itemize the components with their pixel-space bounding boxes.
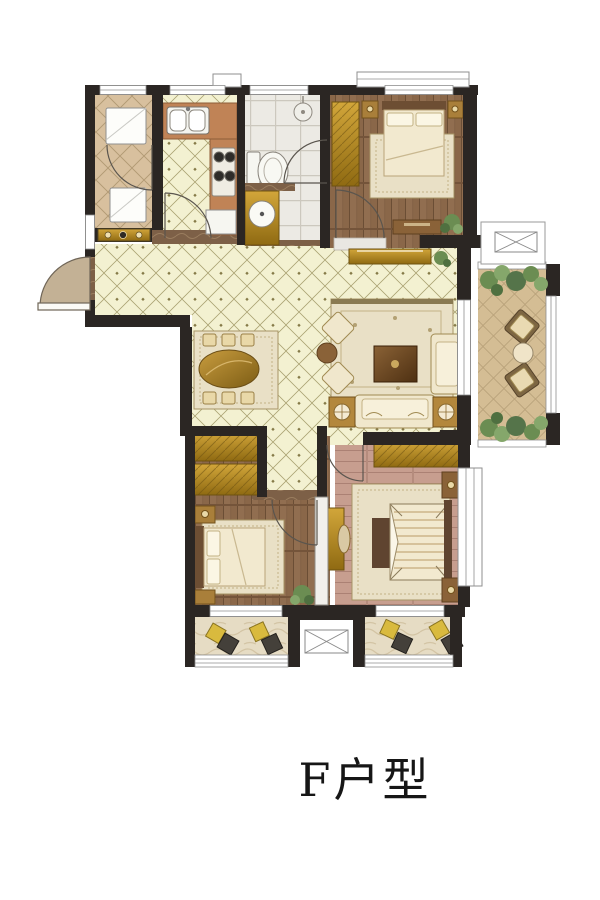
bay-window-kitchen <box>213 74 241 87</box>
nightstand <box>195 590 215 604</box>
window-balcony-left <box>195 655 288 667</box>
bed-headboard <box>444 500 452 584</box>
wall-duct-top <box>288 610 365 620</box>
sink-basin-right <box>189 110 205 131</box>
entry-door-leaf <box>38 303 90 310</box>
entry-console <box>98 229 150 241</box>
wall-balcony-right-bottom-bracket <box>546 413 560 445</box>
wall-balcony-right-top-bracket <box>546 264 560 296</box>
wall-master-north <box>363 432 467 445</box>
dining-chair <box>203 334 216 346</box>
floor-plan-canvas: F户型 <box>0 0 600 900</box>
dining-chair <box>222 334 235 346</box>
dresser-mirror <box>338 525 350 553</box>
bay-window-master <box>458 468 482 586</box>
pillow <box>207 531 220 556</box>
pillow <box>387 113 413 126</box>
bed-headboard <box>195 526 204 588</box>
bath-partition <box>245 183 295 191</box>
wall-utility-kitchen <box>152 95 163 230</box>
entry-hall-floor <box>95 244 330 315</box>
rug-fringe <box>331 299 453 304</box>
wall-west-mid <box>180 327 192 436</box>
plan-title: F户型 <box>230 744 500 810</box>
duct-shaft-bottom-interior <box>300 620 353 667</box>
dresser <box>393 220 441 234</box>
dining-chair <box>203 392 216 404</box>
wall-dining-bedroom3 <box>190 426 267 436</box>
dining-chair <box>241 392 254 404</box>
window-balcony-right <box>365 655 453 667</box>
dining-chair <box>222 392 235 404</box>
pillow <box>416 113 442 126</box>
pillow <box>207 559 220 584</box>
bed-headboard <box>382 101 446 110</box>
hallway-floor <box>267 426 317 497</box>
balcony-right-bottom-edge <box>478 440 546 447</box>
wall-kitchen-bath <box>237 95 245 245</box>
wall-hall-west <box>257 426 267 497</box>
wall-east-upper <box>463 85 477 248</box>
entry-door-swing <box>40 257 90 307</box>
console-decor <box>120 232 127 239</box>
faucet <box>186 107 190 111</box>
bay-window-bedroom2 <box>357 72 469 87</box>
bedroom2-threshold <box>334 238 386 250</box>
dining-table <box>199 350 259 388</box>
wall-bath-bedroom <box>320 95 330 248</box>
wall-bedroom2-south <box>420 235 463 248</box>
wall-hall-east <box>317 426 327 497</box>
sink-basin-left <box>170 110 186 131</box>
patio-table <box>513 343 533 363</box>
wall-west-lower <box>185 436 195 667</box>
dining-chair <box>241 334 254 346</box>
bed-bench <box>372 518 390 568</box>
window-left <box>86 215 95 249</box>
wall-entry-south <box>85 315 190 327</box>
dining-room-furniture <box>194 331 278 409</box>
round-side-table <box>317 343 337 363</box>
